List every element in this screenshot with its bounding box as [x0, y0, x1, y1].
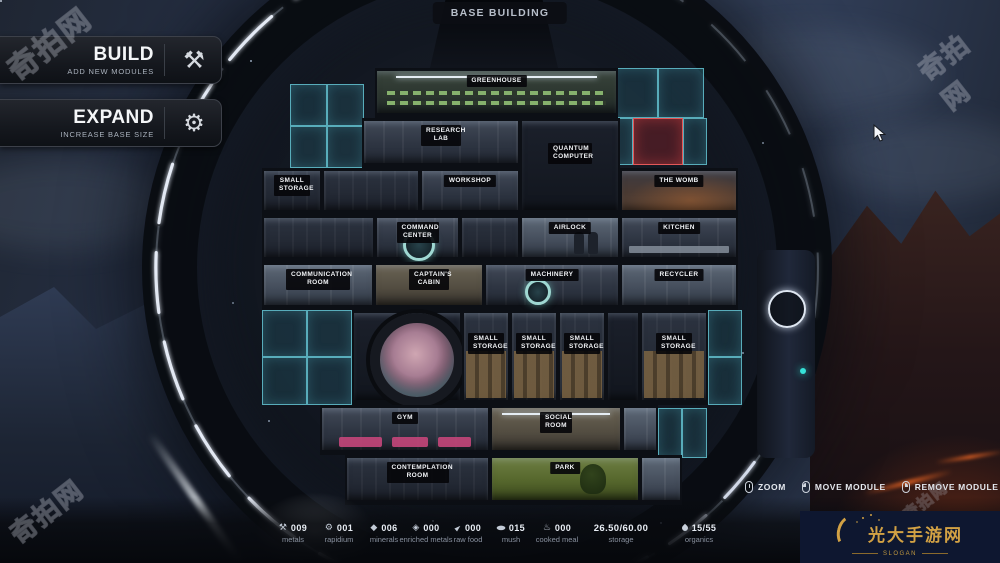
module-label: SMALL STORAGE	[656, 333, 692, 354]
expand-button-label: EXPAND	[60, 108, 154, 127]
module-label: GREENHOUSE	[466, 75, 526, 87]
module-label: AIRLOCK	[549, 222, 591, 234]
module-label: SMALL STORAGE	[468, 333, 504, 354]
tools-icon: ⚒	[173, 46, 215, 74]
logo-slogan: SLOGAN	[852, 551, 948, 557]
module-label: SOCIAL ROOM	[540, 412, 572, 433]
enriched-metals-icon: ◈	[412, 524, 419, 533]
exterior-pod	[757, 250, 815, 458]
logo-stars	[862, 517, 864, 519]
site-logo: 光大手游网 SLOGAN	[800, 511, 1000, 563]
build-button-sublabel: ADD NEW MODULES	[67, 67, 154, 76]
module-label: SMALL STORAGE	[274, 175, 310, 196]
footer-actions: ZOOM MOVE MODULE REMOVE MODULE	[745, 481, 999, 493]
pod-indicator-light	[800, 368, 806, 374]
zoom-action[interactable]: ZOOM	[745, 481, 786, 493]
expand-button-sublabel: INCREASE BASE SIZE	[60, 130, 154, 139]
cooked-meal-icon: ♨	[543, 524, 551, 533]
base-building-screen: GREENHOUSE RESEARCH LAB QUANTUM COMPUTER…	[0, 0, 1000, 563]
divider	[164, 107, 165, 139]
resource-cooked-meal: ♨000 cooked meal	[527, 522, 587, 545]
module-label: KITCHEN	[658, 222, 700, 234]
module-label: SMALL STORAGE	[516, 333, 552, 354]
move-module-action[interactable]: MOVE MODULE	[802, 481, 886, 493]
module-label: CAPTAIN'S CABIN	[409, 269, 449, 290]
organics-droplet-icon	[680, 524, 688, 532]
module-label: MACHINERY	[526, 269, 579, 281]
module-label: SMALL STORAGE	[564, 333, 600, 354]
mouse-right-icon	[902, 481, 910, 493]
module-label: WORKSHOP	[444, 175, 496, 187]
module-label: QUANTUM COMPUTER	[548, 143, 592, 164]
divider	[164, 44, 165, 76]
pod-ring-light	[768, 290, 806, 328]
build-button-label: BUILD	[67, 45, 154, 64]
remove-module-action[interactable]: REMOVE MODULE	[902, 481, 999, 493]
rapidium-icon: ⚙	[325, 524, 333, 533]
expand-button[interactable]: EXPAND INCREASE BASE SIZE ⚙	[0, 99, 222, 147]
mouse-wheel-icon	[745, 481, 753, 493]
module-label: CONTEMPLATION ROOM	[387, 462, 449, 483]
module-label: THE WOMB	[654, 175, 703, 187]
logo-title: 光大手游网	[868, 521, 963, 546]
module-label: GYM	[392, 412, 418, 424]
gear-icon: ⚙	[173, 109, 215, 137]
module-label: COMMUNICATION ROOM	[286, 269, 350, 290]
mush-icon: ●	[496, 525, 506, 531]
page-title: BASE BUILDING	[433, 2, 567, 24]
minerals-icon: ◆	[370, 524, 377, 533]
module-label: RESEARCH LAB	[421, 125, 461, 146]
module-label: RECYCLER	[655, 269, 704, 281]
build-button[interactable]: BUILD ADD NEW MODULES ⚒	[0, 36, 222, 84]
module-label: COMMAND CENTER	[397, 222, 439, 243]
resource-organics: 15/55 organics	[669, 522, 729, 545]
raw-food-icon: ►	[453, 523, 463, 533]
metals-icon: ⚒	[279, 524, 287, 533]
resource-storage: 26.50/60.00 storage	[581, 522, 661, 545]
mouse-left-icon	[802, 481, 810, 493]
mouse-cursor	[873, 124, 886, 143]
module-label: PARK	[550, 462, 580, 474]
